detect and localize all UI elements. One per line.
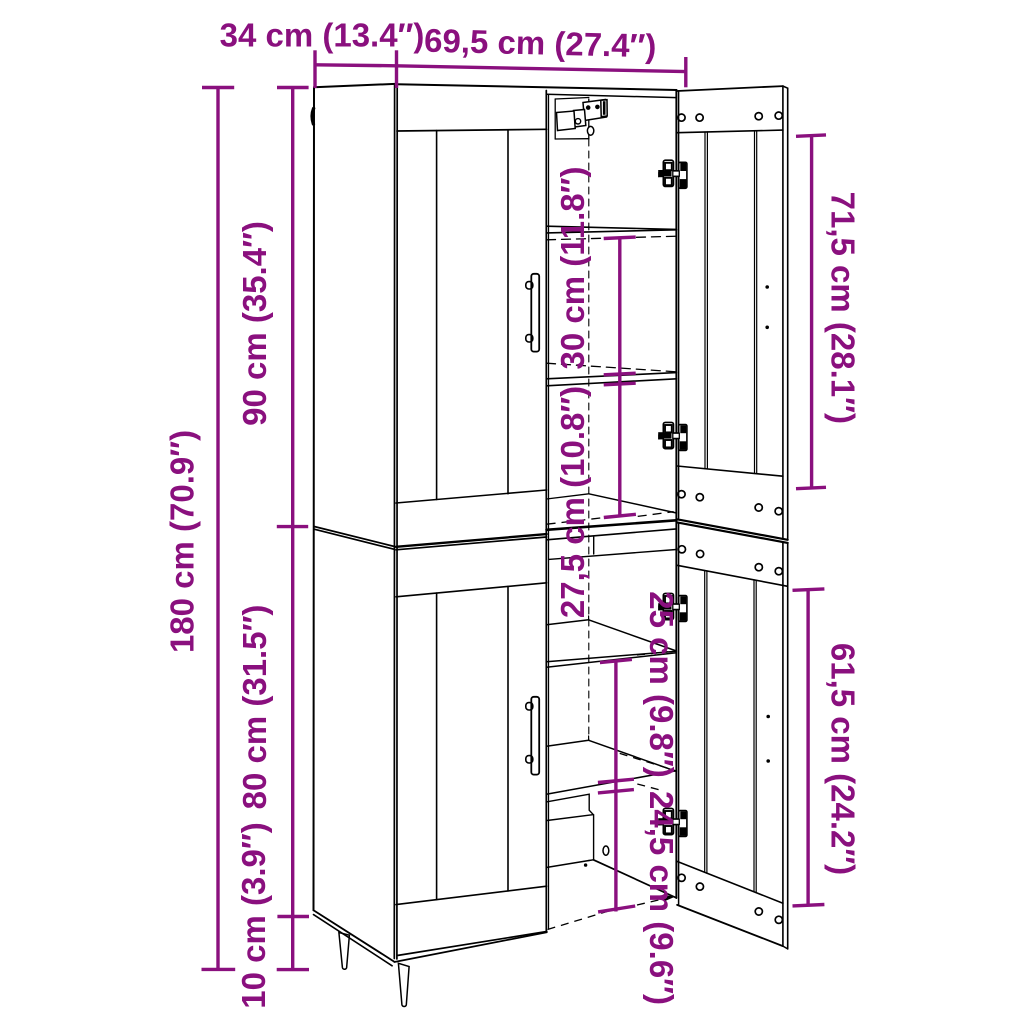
svg-text:27,5 cm (10.8″): 27,5 cm (10.8″) bbox=[554, 386, 591, 618]
svg-text:34 cm (13.4″): 34 cm (13.4″) bbox=[220, 17, 425, 54]
svg-text:71,5 cm (28.1″): 71,5 cm (28.1″) bbox=[825, 192, 862, 424]
svg-text:180 cm (70.9″): 180 cm (70.9″) bbox=[164, 430, 201, 653]
svg-text:24,5 cm (9.6″): 24,5 cm (9.6″) bbox=[643, 791, 680, 1005]
svg-text:90 cm (35.4″): 90 cm (35.4″) bbox=[236, 221, 273, 426]
svg-text:80 cm (31.5″): 80 cm (31.5″) bbox=[236, 605, 273, 810]
svg-text:69,5 cm (27.4″): 69,5 cm (27.4″) bbox=[424, 22, 657, 65]
svg-text:25 cm (9.8″): 25 cm (9.8″) bbox=[643, 591, 680, 777]
svg-text:61,5 cm (24.2″): 61,5 cm (24.2″) bbox=[825, 643, 862, 875]
svg-text:30 cm (11.8″): 30 cm (11.8″) bbox=[554, 167, 591, 370]
svg-text:10 cm (3.9″): 10 cm (3.9″) bbox=[235, 822, 272, 1008]
